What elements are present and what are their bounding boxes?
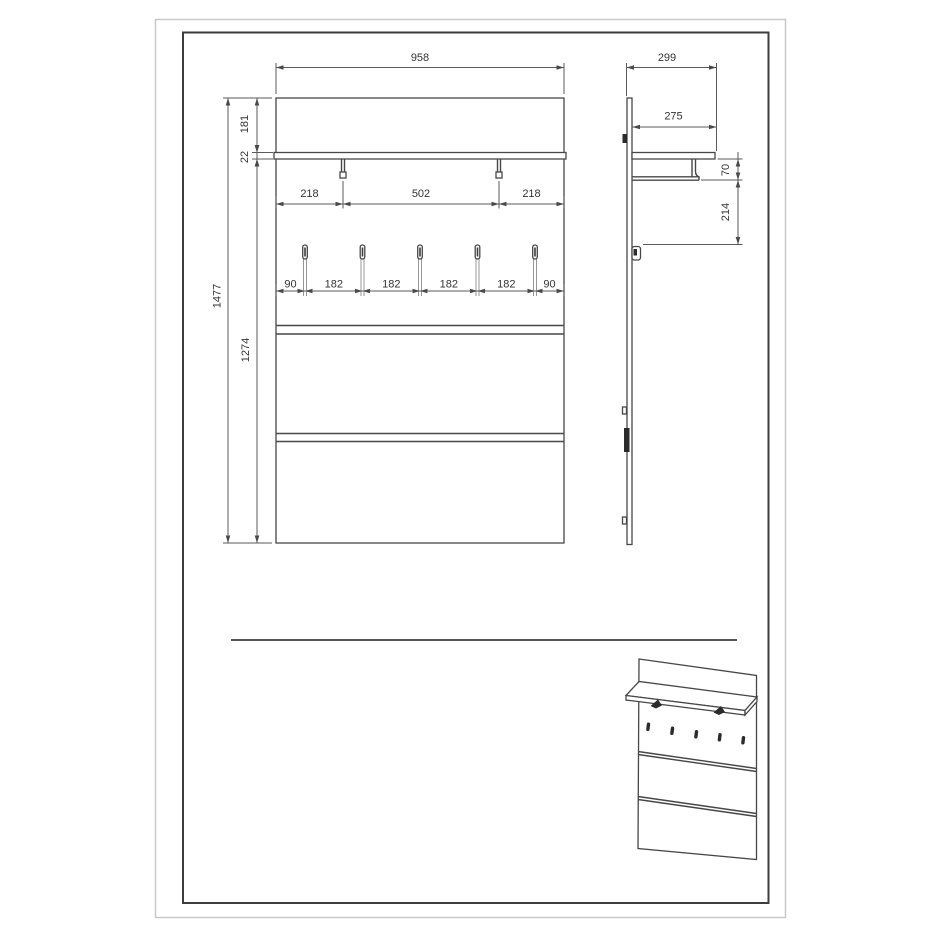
total-height-label: 1477 [212,284,224,308]
support-left-label: 218 [300,188,318,200]
front-width-label: 958 [411,52,429,64]
side-coat-hook [632,247,641,261]
support-right-label: 218 [522,188,540,200]
hook-gap-label: 90 [543,279,555,291]
hook-gap-label: 182 [325,279,343,291]
depth-label: 299 [658,52,676,64]
front-shelf [274,153,566,160]
body-height-label: 1274 [240,338,252,362]
back-bracket [624,428,630,452]
hook-drop-label: 214 [720,203,732,221]
rail-drop-label: 70 [720,164,732,176]
drawing-canvas: 958 218 502 218 [0,0,940,940]
back-clip [623,407,627,414]
side-shelf [632,153,715,160]
technical-drawing-page: 958 218 502 218 [0,0,940,940]
top-board-height-label: 181 [239,115,251,133]
shelf-depth-label: 275 [664,111,682,123]
front-panel [276,98,564,543]
hook-gap-label: 182 [440,279,458,291]
shelf-thickness-label: 22 [239,151,251,163]
wall-bracket [623,134,628,143]
hook-gap-label: 90 [284,279,296,291]
back-clip [623,517,627,524]
support-center-label: 502 [412,188,430,200]
hook-gap-label: 182 [382,279,400,291]
side-panel [627,98,632,545]
perspective-view [626,659,757,860]
hook-gap-label: 182 [497,279,515,291]
